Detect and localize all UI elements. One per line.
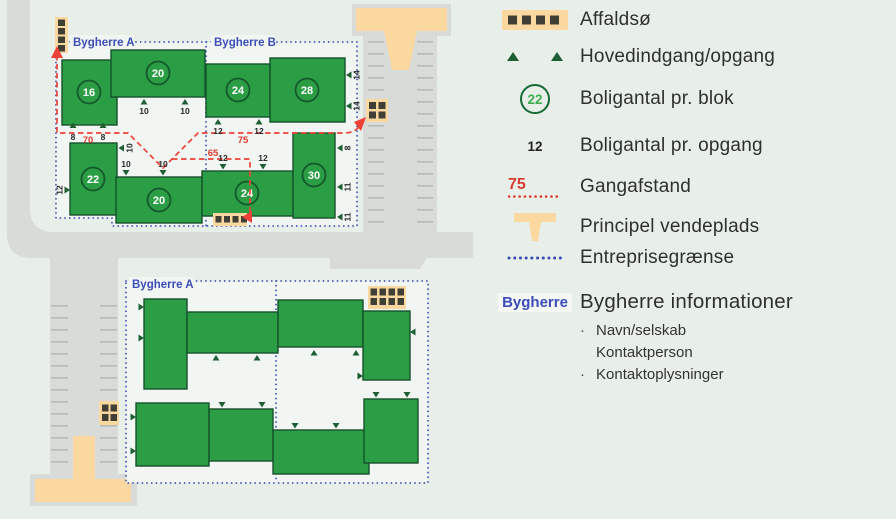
opgang-24b-1: 12 xyxy=(218,153,228,163)
parking-stalls-north-left xyxy=(368,41,384,227)
vendeplads-icon xyxy=(497,212,573,242)
opgang-30-3: 11 xyxy=(343,212,353,221)
parking-stalls-north-right xyxy=(417,41,433,227)
bullet: · xyxy=(580,320,596,342)
legend: Affaldsø Hovedindgang/opgang 22 Boligant… xyxy=(497,0,896,519)
bygherre-sub-navn: Navn/selskab xyxy=(596,320,686,342)
opgang-20b-1: 10 xyxy=(121,159,131,169)
lower-block-3 xyxy=(278,300,363,347)
lower-block-8 xyxy=(364,399,418,463)
legend-item-boligantal-opgang: 12 Boligantal pr. opgang xyxy=(497,132,763,160)
bygherre-chip-text: Bygherre xyxy=(498,293,572,312)
block-24-top-count: 24 xyxy=(232,85,245,97)
opgang-20t-2: 10 xyxy=(180,106,190,116)
upper-bygherre-a-label: Bygherre A xyxy=(73,37,135,49)
lower-bygherre-a-label: Bygherre A xyxy=(132,279,194,291)
block-20-bottom-count: 20 xyxy=(153,195,165,207)
lower-block-7 xyxy=(273,430,369,474)
affaldso-icon xyxy=(497,10,573,30)
opgang-20b-2: 10 xyxy=(158,159,168,169)
opgang-24t-2: 12 xyxy=(254,126,264,136)
opgang-16-2: 8 xyxy=(101,132,106,142)
distance-70: 70 xyxy=(83,135,94,146)
legend-label-hovedindgang: Hovedindgang/opgang xyxy=(580,46,775,68)
bygherre-sub-line-1: · Navn/selskab xyxy=(580,320,724,342)
bullet: · xyxy=(580,364,596,386)
opgang-22-left: 12 xyxy=(55,185,65,195)
blok-count-sample: 22 xyxy=(520,84,550,114)
legend-label-gangafstand: Gangafstand xyxy=(580,176,691,198)
bygherre-chip-icon: Bygherre xyxy=(497,293,573,312)
affaldso-south-road xyxy=(99,401,119,425)
opgang-16-1: 8 xyxy=(71,132,76,142)
legend-label-entreprisegraense: Entreprisegrænse xyxy=(580,247,734,269)
legend-label-affaldso: Affaldsø xyxy=(580,9,651,31)
legend-item-boligantal-blok: 22 Boligantal pr. blok xyxy=(497,84,734,114)
parking-stalls-south-left xyxy=(51,300,68,466)
upper-bygherre-b-label: Bygherre B xyxy=(214,37,276,49)
legend-item-affaldso: Affaldsø xyxy=(497,6,651,34)
legend-label-vendeplads: Principel vendeplads xyxy=(580,216,759,238)
lower-block-2 xyxy=(187,312,278,353)
gangafstand-sample: 75 xyxy=(508,176,526,193)
distance-75: 75 xyxy=(238,135,249,146)
legend-item-gangafstand: 75 Gangafstand xyxy=(497,172,691,202)
block-30-count: 30 xyxy=(308,170,320,182)
lower-block-5 xyxy=(136,403,209,466)
blok-count-icon: 22 xyxy=(497,84,573,114)
legend-item-vendeplads: Principel vendeplads xyxy=(497,212,759,242)
opgang-count-icon: 12 xyxy=(497,139,573,154)
opgang-22-right: 10 xyxy=(125,143,135,153)
entreprisegraense-icon xyxy=(497,255,573,261)
bygherre-sub-line-3: · Kontaktoplysninger xyxy=(580,364,724,386)
affaldso-north-road xyxy=(366,99,388,122)
parking-stalls-south-right xyxy=(100,300,117,466)
legend-label-boligantal-blok: Boligantal pr. blok xyxy=(580,88,734,110)
entrance-triangles-icon xyxy=(497,51,573,63)
bygherre-sub-list: · Navn/selskab Kontaktperson · Kontaktop… xyxy=(580,320,724,386)
bullet-empty xyxy=(580,342,596,364)
opgang-30-2: 11 xyxy=(343,182,353,191)
affaldso-lower-complex xyxy=(368,286,406,309)
lower-block-1 xyxy=(144,299,187,389)
opgang-28-2: 14 xyxy=(352,101,362,111)
block-28-count: 28 xyxy=(301,85,313,97)
lower-block-6 xyxy=(209,409,273,461)
legend-label-boligantal-opgang: Boligantal pr. opgang xyxy=(580,135,763,157)
gangafstand-icon: 75 xyxy=(497,176,573,199)
affaldso-upper-bottom xyxy=(213,213,247,226)
legend-item-entreprisegraense: Entreprisegrænse xyxy=(497,245,734,271)
lower-block-4 xyxy=(363,311,410,380)
block-22-count: 22 xyxy=(87,174,99,186)
bygherre-sub-kontaktperson: Kontaktperson xyxy=(596,342,693,364)
block-24-bottom-count: 24 xyxy=(241,188,254,200)
bygherre-sub-line-2: Kontaktperson xyxy=(580,342,724,364)
legend-label-bygherre: Bygherre informationer xyxy=(580,290,793,314)
opgang-28-1: 14 xyxy=(352,70,362,80)
opgang-20t-1: 10 xyxy=(139,106,149,116)
block-16-count: 16 xyxy=(83,87,95,99)
opgang-count-sample: 12 xyxy=(527,139,542,154)
legend-item-bygherre: Bygherre Bygherre informationer xyxy=(497,286,793,318)
opgang-30-1: 8 xyxy=(343,145,353,150)
opgang-24t-1: 12 xyxy=(213,126,223,136)
legend-item-hovedindgang: Hovedindgang/opgang xyxy=(497,43,775,71)
bygherre-sub-kontaktoplysninger: Kontaktoplysninger xyxy=(596,364,724,386)
opgang-24b-2: 12 xyxy=(258,153,268,163)
block-20-top-count: 20 xyxy=(152,68,164,80)
